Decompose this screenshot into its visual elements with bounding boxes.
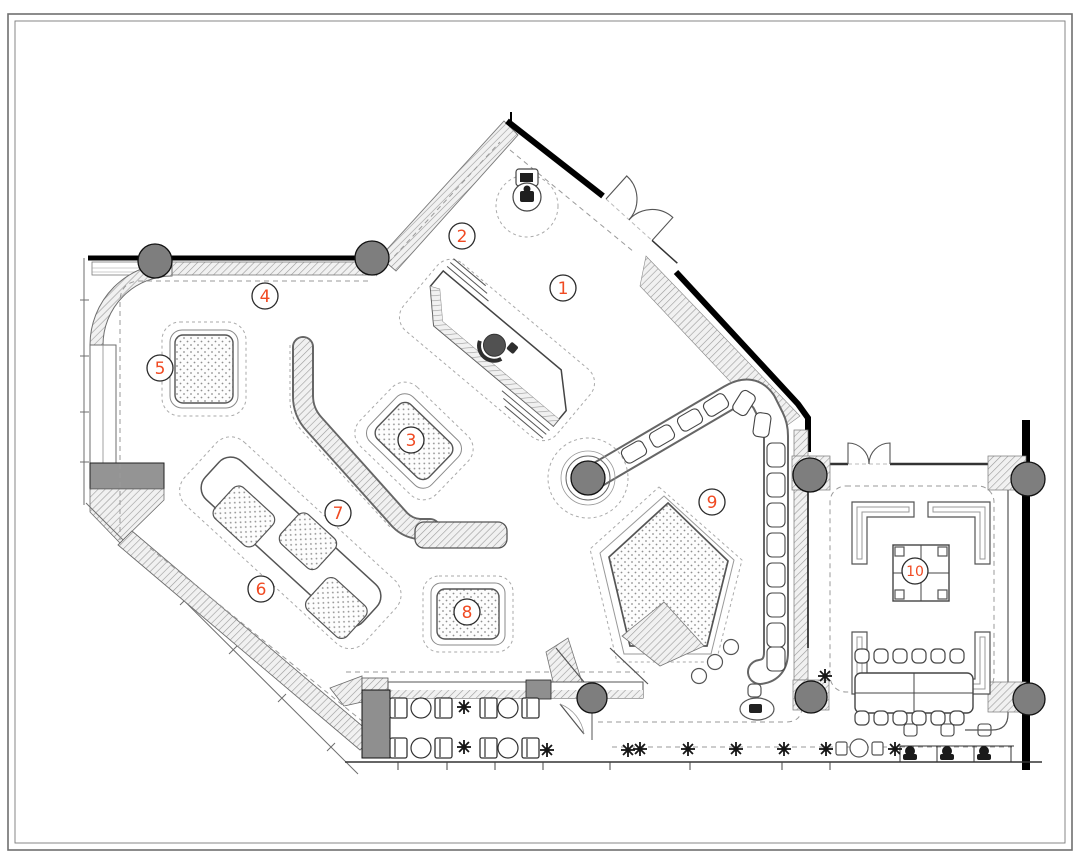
- lounge-room-10: [792, 443, 1026, 730]
- drawing-sheet: 12345678910: [0, 0, 1080, 864]
- plant-icon: [457, 740, 471, 754]
- area-label-number: 9: [707, 493, 718, 513]
- stool: [874, 711, 888, 725]
- stool: [855, 711, 869, 725]
- cafe-chair: [435, 738, 452, 758]
- plant-icon: [729, 742, 743, 756]
- area-label-5: 5: [147, 355, 173, 381]
- stool: [893, 649, 907, 663]
- counter-seat: [767, 593, 785, 617]
- cafe-table: [498, 738, 518, 758]
- plant-icon: [819, 742, 833, 756]
- round-table: [850, 739, 868, 757]
- counter-seat: [767, 623, 785, 647]
- kidney-desk: [740, 684, 774, 720]
- plant-icon: [818, 669, 832, 683]
- plant-icon: [621, 743, 635, 757]
- stool: [912, 649, 926, 663]
- cafe-counter: [362, 690, 390, 758]
- study-desk: [940, 724, 954, 760]
- plant-icon: [681, 742, 695, 756]
- display-platform-6: [171, 429, 409, 657]
- cafe-table: [498, 698, 518, 718]
- ne-entry-door: [606, 176, 698, 263]
- cafe-service-block: [526, 680, 551, 699]
- entry-pedestal: [496, 169, 558, 237]
- column-icon: [138, 244, 172, 278]
- structural-columns: [138, 241, 1045, 715]
- area-label-9: 9: [699, 489, 725, 515]
- cafe-chair: [390, 738, 407, 758]
- area-label-10: 10: [902, 558, 928, 584]
- area-label-8: 8: [454, 599, 480, 625]
- counter-seat: [767, 503, 785, 527]
- cafe-table: [411, 698, 431, 718]
- top-wall-hatch: [162, 262, 374, 275]
- column-icon: [793, 458, 827, 492]
- column-icon: [1011, 462, 1045, 496]
- counter-seat: [767, 473, 785, 497]
- conference-table: [855, 673, 973, 713]
- counter-seat: [767, 647, 785, 671]
- area-label-number: 3: [406, 431, 417, 451]
- plant-icon: [540, 743, 554, 757]
- area-label-2: 2: [449, 223, 475, 249]
- column-icon: [795, 681, 827, 713]
- area-label-number: 6: [256, 580, 267, 600]
- stool: [874, 649, 888, 663]
- counter-seat: [767, 443, 785, 467]
- area-label-number: 5: [155, 359, 166, 379]
- stool: [931, 649, 945, 663]
- area-label-4: 4: [252, 283, 278, 309]
- study-desk: [903, 724, 917, 760]
- cafe-chair: [480, 738, 497, 758]
- area-label-number: 10: [906, 564, 924, 580]
- area-label-7: 7: [325, 500, 351, 526]
- wall-cabinet: [90, 463, 164, 489]
- cafe-chair: [435, 698, 452, 718]
- floor-plan-canvas: 12345678910: [0, 0, 1080, 864]
- counter-seat: [767, 563, 785, 587]
- stool: [950, 649, 964, 663]
- counter-seat: [752, 412, 771, 438]
- cafe-chair: [390, 698, 407, 718]
- cafe-table: [411, 738, 431, 758]
- ne-wall-hatch: [380, 121, 518, 271]
- column-icon: [571, 461, 605, 495]
- area-label-number: 7: [333, 504, 344, 524]
- area-label-6: 6: [248, 576, 274, 602]
- stool: [893, 711, 907, 725]
- plant-icon: [633, 742, 647, 756]
- cafe-chair: [480, 698, 497, 718]
- stool: [912, 711, 926, 725]
- lounge-double-door: [848, 443, 890, 464]
- plant-icon: [777, 742, 791, 756]
- area-label-number: 8: [462, 603, 473, 623]
- plant-icon: [457, 700, 471, 714]
- area-label-1: 1: [550, 275, 576, 301]
- area-label-number: 1: [558, 279, 569, 299]
- area-label-number: 4: [260, 287, 271, 307]
- cafe-chair: [522, 738, 539, 758]
- display-platform-5: [162, 322, 246, 416]
- column-icon: [577, 683, 607, 713]
- counter-seat: [767, 533, 785, 557]
- column-icon: [355, 241, 389, 275]
- stool: [931, 711, 945, 725]
- cafe-chair: [522, 698, 539, 718]
- area-label-number: 2: [457, 227, 468, 247]
- stool: [950, 711, 964, 725]
- column-icon: [1013, 683, 1045, 715]
- area-label-3: 3: [398, 427, 424, 453]
- stool: [855, 649, 869, 663]
- plant-icon: [888, 742, 902, 756]
